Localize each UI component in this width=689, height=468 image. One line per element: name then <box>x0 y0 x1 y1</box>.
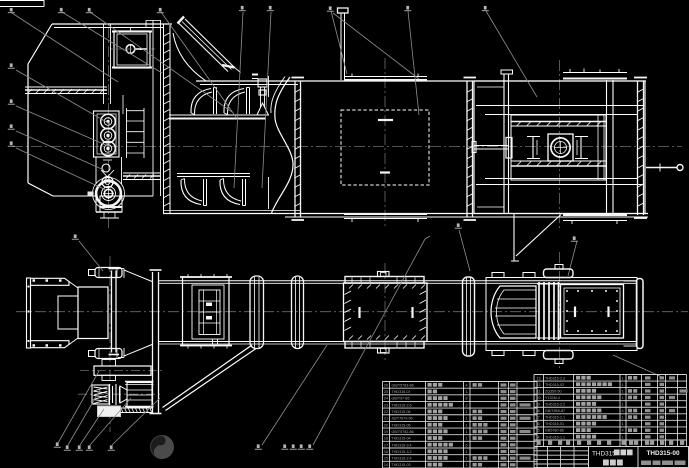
svg-text:1: 1 <box>465 410 467 414</box>
svg-text:1: 1 <box>465 417 467 421</box>
svg-text:1: 1 <box>465 463 467 467</box>
svg-text:10: 10 <box>536 396 540 400</box>
svg-text:1: 1 <box>621 396 623 400</box>
svg-text:4: 4 <box>621 429 623 433</box>
svg-text:THD315-00: THD315-00 <box>646 450 679 457</box>
svg-text:JB/T7679-95: JB/T7679-95 <box>392 417 413 421</box>
svg-text:6: 6 <box>465 443 467 447</box>
svg-text:THD315-1.1: THD315-1.1 <box>545 435 565 439</box>
svg-text:1: 1 <box>621 389 623 393</box>
svg-text:15: 15 <box>384 457 388 461</box>
svg-text:4: 4 <box>537 435 539 439</box>
svg-text:THD315-3.4: THD315-3.4 <box>392 443 412 447</box>
svg-text:24: 24 <box>384 397 388 401</box>
svg-text:1: 1 <box>621 383 623 387</box>
svg-text:THD315-01: THD315-01 <box>545 422 564 426</box>
svg-text:6: 6 <box>537 422 539 426</box>
svg-text:THD315-2.1: THD315-2.1 <box>545 416 565 420</box>
svg-text:7: 7 <box>537 416 539 420</box>
svg-text:GB5780-86: GB5780-86 <box>545 429 564 433</box>
svg-text:THD315-05: THD315-05 <box>392 423 411 427</box>
svg-text:THD315-07: THD315-07 <box>392 390 411 394</box>
svg-text:18: 18 <box>384 437 388 441</box>
svg-text:1: 1 <box>465 390 467 394</box>
svg-text:THD315-3.2: THD315-3.2 <box>392 450 412 454</box>
svg-text:1: 1 <box>621 435 623 439</box>
svg-text:GB/T97-85: GB/T97-85 <box>392 397 410 401</box>
svg-text:1: 1 <box>621 422 623 426</box>
svg-text:13: 13 <box>536 376 540 380</box>
svg-text:16: 16 <box>384 450 388 454</box>
svg-text:1: 1 <box>621 403 623 407</box>
svg-text:14: 14 <box>384 463 388 467</box>
svg-text:5: 5 <box>537 429 539 433</box>
svg-text:ZQ350-50: ZQ350-50 <box>545 389 562 393</box>
svg-text:1: 1 <box>465 450 467 454</box>
svg-text:1: 1 <box>621 416 623 420</box>
svg-text:8: 8 <box>537 409 539 413</box>
svg-text:THD315-2.3: THD315-2.3 <box>545 376 565 380</box>
svg-text:THD315-02: THD315-02 <box>545 383 564 387</box>
svg-text:25: 25 <box>384 390 388 394</box>
svg-text:4: 4 <box>465 383 467 387</box>
svg-text:THD315-2.6: THD315-2.6 <box>392 403 412 407</box>
svg-text:THD315-2.4: THD315-2.4 <box>392 457 412 461</box>
svg-text:GB/T859-87: GB/T859-87 <box>545 409 565 413</box>
svg-text:22: 22 <box>384 410 388 414</box>
svg-text:4: 4 <box>621 409 623 413</box>
svg-text:THD315: THD315 <box>592 451 616 458</box>
svg-text:8: 8 <box>465 397 467 401</box>
svg-text:20: 20 <box>384 423 388 427</box>
svg-text:GB/T5782-86: GB/T5782-86 <box>392 430 414 434</box>
svg-text:THD315-03: THD315-03 <box>392 463 411 467</box>
svg-text:THD315-04: THD315-04 <box>392 437 411 441</box>
svg-text:23: 23 <box>384 403 388 407</box>
svg-text:12: 12 <box>536 383 540 387</box>
svg-text:11: 11 <box>537 389 541 393</box>
svg-text:1: 1 <box>465 437 467 441</box>
svg-text:1: 1 <box>465 430 467 434</box>
svg-text:21: 21 <box>384 417 388 421</box>
svg-text:19: 19 <box>384 430 388 434</box>
svg-text:THD315-06: THD315-06 <box>392 410 411 414</box>
svg-text:1: 1 <box>621 376 623 380</box>
svg-text:26: 26 <box>384 383 388 387</box>
svg-text:1: 1 <box>465 423 467 427</box>
svg-text:1: 1 <box>465 457 467 461</box>
svg-text:THD315-2.2: THD315-2.2 <box>545 403 565 407</box>
svg-text:17: 17 <box>384 443 388 447</box>
svg-text:Y132M-4: Y132M-4 <box>545 396 560 400</box>
svg-text:9: 9 <box>537 403 539 407</box>
svg-text:2: 2 <box>465 403 467 407</box>
svg-text:GB/T5783-86: GB/T5783-86 <box>392 383 414 387</box>
